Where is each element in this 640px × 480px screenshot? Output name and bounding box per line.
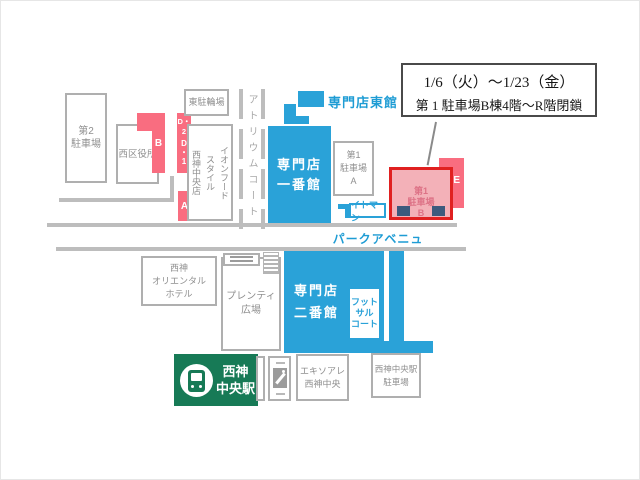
east-bicycle-parking-building: 東駐輪場	[184, 89, 229, 116]
futsal-court: フット サル コート	[348, 287, 381, 340]
atrium-court-label: アトリウムコート	[244, 94, 259, 234]
zone-b-block: B	[152, 113, 165, 173]
parking1-b-entrance-right	[432, 206, 445, 216]
road-atrium-east	[261, 89, 265, 229]
zone-e-label: E	[453, 175, 460, 186]
parking2-building: 第2 駐車場	[65, 93, 107, 183]
parking1-a-building: 第1 駐車場 A	[333, 141, 374, 196]
senmonten-east-annex2	[294, 116, 309, 124]
parking1-b-label: 第1 駐車場 B	[407, 186, 434, 218]
closure-dates: 1/6（火）～1/23（金）	[403, 71, 595, 92]
senmonten-east-label: 専門店東館	[328, 92, 398, 111]
crosswalk-line	[230, 260, 253, 262]
train-window	[191, 373, 202, 381]
escalator-box	[268, 356, 291, 401]
senmonten-2-south-wing	[384, 341, 433, 353]
passage-strip	[256, 356, 265, 401]
itoman-building: イトマン	[349, 203, 386, 218]
station-building: 西神 中央駅	[174, 354, 258, 406]
crosswalk-lines-icon	[223, 253, 260, 266]
stair-tick-top	[276, 362, 285, 364]
escalator-diagonal	[275, 373, 286, 385]
train-body	[188, 370, 205, 392]
station-parking-building: 西神中央駅 駐車場	[371, 353, 421, 398]
zone-b-label: B	[155, 138, 162, 149]
road-left-upper	[59, 198, 171, 202]
senmonten-2-label: 専門店 二番館	[294, 280, 339, 324]
closure-annotation-box: 1/6（火）～1/23（金） 第 1 駐車場B棟4階～R階閉鎖	[401, 63, 597, 117]
escalator-icon	[273, 368, 287, 388]
road-left-stub	[170, 176, 174, 202]
senmonten-1-building: 専門店 一番館	[268, 126, 331, 223]
crosswalk-line	[230, 256, 253, 258]
aeon-food-style-building: イオンフード スタイル 西神中央店	[187, 124, 233, 221]
itoman-label: イトマン	[351, 198, 384, 224]
stairs-icon	[263, 252, 279, 274]
escalator-person-dot	[282, 370, 285, 373]
train-icon	[180, 364, 213, 397]
callout-pointer-line	[427, 122, 437, 166]
hotel-building: 西神 オリエンタル ホテル	[141, 256, 217, 306]
stair-tick-bottom	[276, 393, 285, 395]
parking1-b-building-highlighted: 第1 駐車場 B	[389, 167, 453, 220]
closure-detail: 第 1 駐車場B棟4階～R階閉鎖	[403, 95, 595, 114]
senmonten-2-east-wing	[389, 251, 404, 342]
parking1-b-entrance-left	[397, 206, 410, 216]
area-guide-map: アトリウムコート 第2 駐車場 西区役所 C B D・2 D ・ 1 A 東駐輪…	[0, 0, 640, 480]
road-atrium-west	[239, 89, 243, 229]
senmonten-east-building	[298, 91, 324, 107]
station-label: 西神 中央駅	[216, 363, 255, 397]
senmonten-2-building: 専門店 二番館 フット サル コート	[284, 251, 384, 353]
ekisoare-building: エキソアレ 西神中央	[296, 354, 349, 401]
